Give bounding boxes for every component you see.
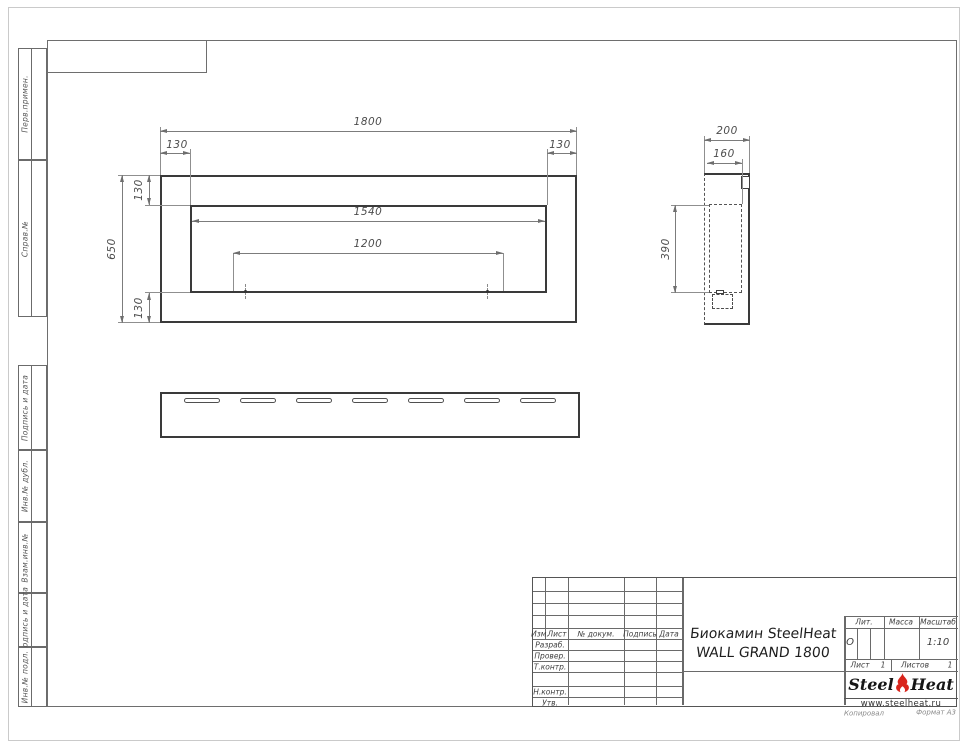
line: [31, 648, 32, 706]
line: [884, 616, 885, 659]
massa-label: Масса: [889, 618, 913, 626]
col-doc: № докум.: [578, 630, 615, 638]
dim-value-390: 390: [661, 238, 672, 260]
dim-line-1800: [160, 131, 577, 132]
stamp-label: Перв.примен.: [21, 75, 29, 133]
lit-label: Лит.: [855, 618, 872, 626]
kopiroval-label: Копировал: [844, 711, 884, 718]
dim-value-1540: 1540: [354, 207, 383, 218]
dim-line-1540: [192, 221, 545, 222]
stamp-label: Инв.№ подл.: [21, 651, 29, 704]
lit-value: О: [846, 638, 854, 648]
sheet-label: Лист: [850, 661, 869, 669]
line: [533, 615, 682, 616]
line: [857, 628, 858, 659]
dim-value-1800: 1800: [354, 117, 383, 128]
vent-slot: [296, 398, 332, 403]
sheet-value: 1: [881, 661, 886, 669]
side-view-burner-box: [712, 294, 733, 309]
col-izm: Изм.: [531, 630, 549, 638]
dim-value-200: 200: [716, 126, 738, 137]
stamp-podpis-data-1: Подпись и дата: [18, 365, 47, 450]
product-title-line2: WALL GRAND 1800: [695, 645, 830, 662]
col-data: Дата: [659, 630, 678, 638]
steelheat-logo: Steel Heat: [844, 671, 958, 698]
line: [533, 591, 682, 592]
role-tkontr: Т.контр.: [534, 663, 567, 671]
dim-line-130-left: [160, 153, 190, 154]
mount-hole: [486, 290, 489, 293]
col-podpis: Подпись: [623, 630, 657, 638]
extension-line: [547, 149, 548, 205]
extension-line: [118, 322, 160, 323]
stamp-sprav-no: Справ.№: [18, 160, 47, 317]
stamp-perv-primen: Перв.примен.: [18, 48, 47, 160]
line: [31, 594, 32, 646]
dim-line-390: [675, 205, 676, 293]
extension-line: [742, 159, 743, 204]
vent-slot: [408, 398, 444, 403]
product-title: Биокамин SteelHeat WALL GRAND 1800: [682, 616, 844, 671]
mount-hole: [244, 290, 247, 293]
extension-line: [233, 253, 234, 291]
vent-slot: [464, 398, 500, 403]
stamp-inv-podl: Инв.№ подл.: [18, 647, 47, 707]
dim-value-130-top: 130: [134, 179, 145, 201]
line: [31, 161, 32, 316]
logo-heat-text: Heat: [911, 677, 954, 693]
scale-value: 1:10: [927, 638, 949, 648]
stamp-label: Справ.№: [21, 220, 29, 256]
product-title-line1: Биокамин SteelHeat: [689, 626, 837, 643]
dim-line-650: [122, 175, 123, 323]
stamp-inv-dubl: Инв.№ дубл.: [18, 450, 47, 522]
designation-box: [47, 40, 207, 73]
stamp-label: Инв.№ дубл.: [21, 460, 29, 512]
line: [870, 628, 871, 659]
line: [31, 523, 32, 592]
dim-value-1200: 1200: [354, 239, 383, 250]
title-block: Изм. Лист № докум. Подпись Дата Разраб. …: [532, 577, 957, 707]
vent-slot: [352, 398, 388, 403]
flame-icon: [895, 673, 910, 697]
stamp-podpis-data-2: Подпись и дата: [18, 593, 47, 647]
dim-line-200: [704, 140, 750, 141]
dim-value-130-left: 130: [166, 140, 188, 151]
top-view-outline: [160, 392, 580, 438]
dim-line-160: [707, 163, 742, 164]
stamp-vzam-inv: Взам.инв.№: [18, 522, 47, 593]
vent-slot: [520, 398, 556, 403]
role-utv: Утв.: [542, 699, 558, 707]
logo-steel-text: Steel: [848, 677, 893, 693]
col-list: Лист: [547, 630, 566, 638]
line: [31, 451, 32, 521]
stamp-label: Подпись и дата: [21, 374, 29, 440]
extension-line: [118, 175, 160, 176]
line: [31, 49, 32, 159]
role-razrab: Разраб.: [535, 641, 564, 649]
side-view-hidden-cavity: [709, 204, 742, 293]
extension-line: [503, 253, 504, 291]
stamp-label: Взам.инв.№: [21, 533, 29, 582]
extension-line: [145, 205, 190, 206]
stamp-label: Подпись и дата: [21, 587, 29, 653]
dim-value-650: 650: [107, 238, 118, 260]
logo-url: www.steelheat.ru: [844, 698, 958, 708]
vent-slot: [184, 398, 220, 403]
role-prover: Провер.: [534, 652, 565, 660]
line: [533, 603, 682, 604]
sheets-label: Листов: [901, 661, 929, 669]
line: [31, 366, 32, 449]
dim-line-130-bottom: [149, 293, 150, 323]
dim-line-130-top: [149, 175, 150, 205]
dim-line-130-right: [547, 153, 577, 154]
dim-line-1200: [233, 253, 503, 254]
sheets-value: 1: [948, 661, 953, 669]
vent-slot: [240, 398, 276, 403]
dim-value-130-right: 130: [549, 140, 571, 151]
line: [533, 672, 682, 673]
role-nkontr: Н.контр.: [533, 688, 567, 696]
dim-value-160: 160: [713, 149, 735, 160]
format-label: Формат А3: [916, 710, 956, 717]
line: [844, 628, 958, 629]
drawing-sheet: Перв.примен. Справ.№ Подпись и дата Инв.…: [0, 0, 970, 749]
line: [891, 659, 892, 671]
scale-label: Масштаб: [920, 618, 956, 626]
extension-line: [145, 292, 190, 293]
dim-value-130-bottom: 130: [134, 297, 145, 319]
extension-line: [190, 149, 191, 205]
